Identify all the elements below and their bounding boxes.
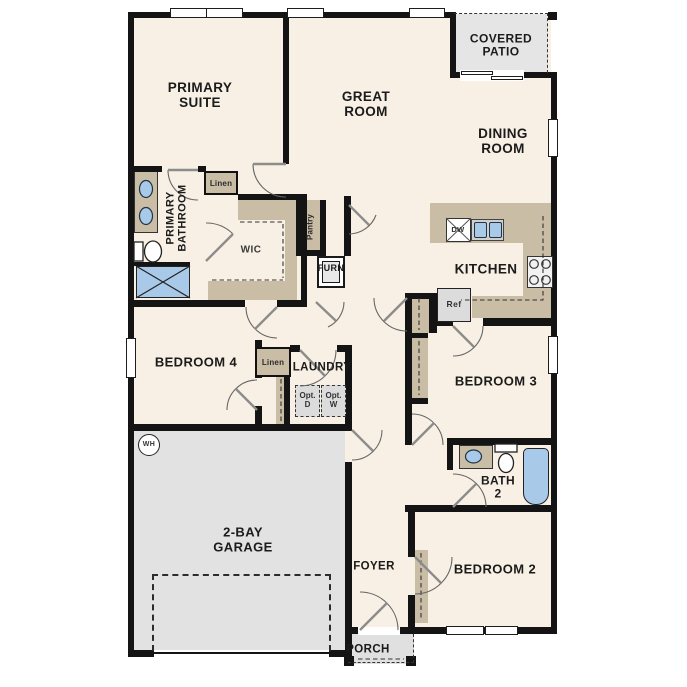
room-label-wic: WIC [241, 244, 262, 255]
wall-bed2-north [405, 505, 551, 512]
wall-kitchen-south-b [483, 318, 551, 326]
wall-pantry-east [320, 200, 326, 252]
window-bedroom4 [126, 338, 136, 378]
optional-washer-box: Opt. W [321, 385, 346, 417]
wall-hall-east-upper [405, 293, 412, 405]
linen-hall-label: Linen [262, 358, 284, 367]
optional-dryer-label: Opt. D [300, 392, 316, 410]
optional-dryer-box: Opt. D [295, 385, 320, 417]
closet-label-pantry: Pantry [307, 214, 316, 240]
room-label-bath2: BATH 2 [481, 475, 515, 502]
wall-suite-east [283, 12, 289, 164]
wall-ne-corner [548, 12, 557, 20]
room-label-bedroom3: BEDROOM 3 [455, 375, 537, 390]
wall-bed2-west-a [408, 512, 415, 557]
equipment-label-dishwasher: DW [451, 226, 464, 234]
window-great-room-2 [409, 8, 445, 18]
patio-slider-panel-2 [491, 76, 523, 80]
wall-bath-south-b [277, 300, 307, 307]
wall-garage-south-a [128, 650, 154, 657]
room-label-covered-patio: COVERED PATIO [470, 33, 532, 60]
window-bedroom2-2 [485, 626, 518, 635]
room-label-bedroom4: BEDROOM 4 [155, 356, 237, 371]
room-label-bedroom2: BEDROOM 2 [454, 563, 536, 578]
bedroom2-closet-shelf [415, 550, 428, 623]
stove-box [527, 256, 553, 288]
wall-bath2-north [447, 438, 551, 445]
bathtub [523, 448, 549, 505]
window-great-room [287, 8, 324, 18]
room-label-dining-room: DINING ROOM [478, 126, 528, 156]
room-label-laundry: LAUNDRY [293, 362, 352, 375]
window-bedroom2-1 [446, 626, 484, 635]
kitchen-sink-basin-1 [474, 222, 487, 238]
window-primary-suite-1 [170, 8, 207, 18]
window-dining [548, 119, 558, 157]
wall-garage-north [128, 424, 352, 431]
wall-exterior-left [128, 12, 134, 657]
wall-suite-south-a [134, 166, 162, 172]
kitchen-sink-basin-2 [489, 222, 502, 238]
optional-washer-label: Opt. W [326, 392, 342, 410]
wic-shelf-top [238, 200, 297, 220]
wall-pantry-west [296, 196, 303, 256]
equipment-label-refrigerator: Ref [447, 300, 462, 310]
wall-garage-east-a [345, 424, 352, 430]
linen-closet-hall: Linen [255, 347, 291, 377]
room-label-great-room: GREAT ROOM [342, 89, 390, 119]
wall-closet-divider [408, 333, 428, 338]
primary-vanity [134, 171, 158, 233]
wall-kitchen-jamb [344, 196, 351, 256]
room-label-kitchen: KITCHEN [455, 261, 518, 276]
wall-laundry-east [345, 345, 352, 424]
wall-hall-east-lower [405, 404, 412, 445]
wall-bed4-east-b [255, 406, 262, 424]
equipment-label-furnace: FURN [318, 263, 345, 273]
wall-laundry-north-a [290, 345, 300, 352]
floor-plan: Opt. D Opt. W Linen Linen [0, 0, 687, 687]
room-label-garage: 2-BAY GARAGE [213, 525, 272, 554]
wall-ref-jamb [429, 293, 437, 333]
room-label-foyer: FOYER [353, 561, 395, 574]
wall-house-south-a [345, 627, 358, 634]
bath2-vanity [459, 445, 493, 469]
equipment-label-water-heater: WH [143, 441, 155, 449]
coat-closet-shelf [412, 296, 429, 333]
shower-box [136, 266, 190, 298]
wall-bed2-west-b [408, 595, 415, 628]
kitchen-counter-bottom [472, 296, 523, 318]
linen-primary-label: Linen [210, 179, 232, 188]
garage-door-dashed [152, 574, 331, 651]
garage-door-line [154, 652, 329, 654]
room-label-primary-suite: PRIMARY SUITE [168, 80, 233, 110]
room-label-primary-bathroom: PRIMARY BATHROOM [165, 184, 190, 251]
linen-closet-primary: Linen [204, 171, 238, 195]
window-bedroom3 [548, 336, 558, 374]
window-primary-suite-2 [206, 8, 243, 18]
room-label-porch: PORCH [346, 644, 390, 657]
wic-shelf-bottom [208, 281, 297, 300]
wall-bath-south-a [128, 300, 245, 307]
wall-bath2-west-a [447, 438, 453, 470]
bedroom3-closet-shelf [412, 338, 428, 398]
